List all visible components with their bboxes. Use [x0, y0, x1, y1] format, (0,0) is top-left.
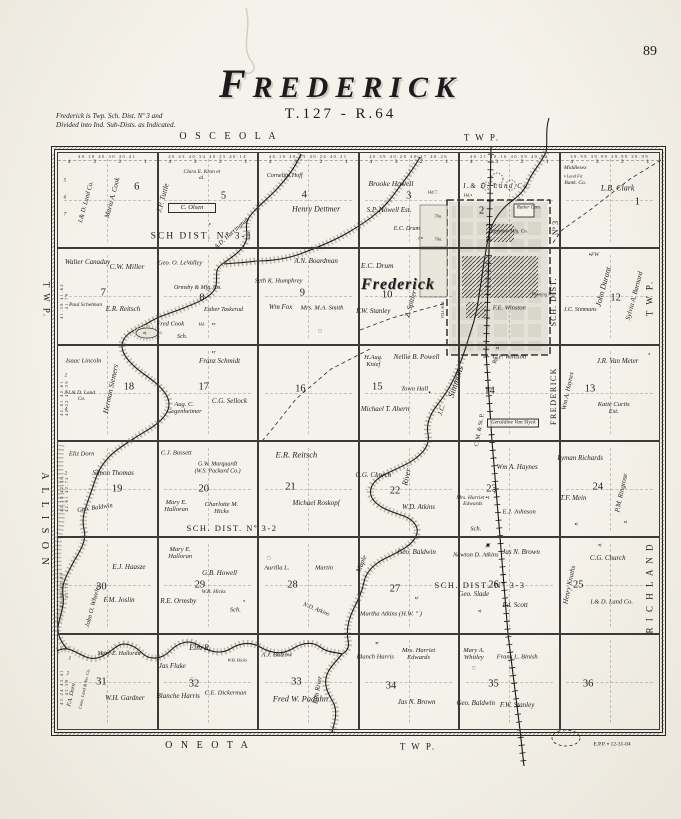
school-label: Sch.	[177, 334, 187, 340]
owner-label: C.G. Sellock	[207, 398, 251, 406]
owner-label: F.W. Stanley	[497, 703, 537, 711]
owner-label: E.C. Drum	[394, 226, 420, 232]
township-west-twp: T W P.	[42, 282, 51, 318]
homestead-marker: Hd.□	[428, 190, 437, 195]
owner-label: Geo. O. LeValley	[154, 259, 206, 266]
quarter-number: 4	[369, 159, 372, 165]
owner-label: Jas Fluke	[157, 663, 187, 671]
owner-label: Geo. Baldwin	[65, 500, 125, 515]
quarter-number: 4	[168, 159, 171, 165]
section-2: 40.21 40.16 40.09 40.034321I.& D. Land C…	[459, 152, 560, 248]
quarter-number: 1	[144, 159, 147, 165]
owner-label: Herman Siemers	[102, 364, 120, 415]
lot-number: 7	[64, 213, 67, 218]
owner-label: Jas N. Brown	[396, 699, 438, 707]
quarter-number: 2	[320, 159, 323, 165]
owner-label: E.R. Reitsch	[276, 451, 318, 460]
signature: E.P.P. ▪ 12-31-04	[593, 742, 630, 748]
owner-label: Esther Taskerud	[202, 306, 246, 312]
page-number: 89	[643, 44, 657, 60]
township-east-twp: T W P.	[646, 280, 655, 316]
building-marker: ▪r	[375, 641, 379, 646]
frederick-town-label: Frederick	[361, 277, 435, 293]
section-number: 16	[295, 384, 306, 395]
owner-label: P.M. Ringrose	[614, 473, 630, 513]
quarter-number: 4	[470, 159, 473, 165]
section-number: 9	[300, 287, 305, 298]
owner-label: Conn. Land & Inv. Co.	[78, 669, 91, 710]
owner-label: J.R. Van Meter	[590, 358, 645, 366]
quarter-number: 4	[269, 159, 272, 165]
owner-label: Aurilla L.	[264, 565, 289, 572]
building-marker: ▪	[428, 390, 430, 396]
quarter-numbers: 4321	[470, 159, 549, 165]
district-label-frederick: FREDERICK	[550, 367, 558, 425]
building-marker: ▪t	[478, 609, 481, 614]
quarter-number: 3	[495, 159, 498, 165]
owner-label: Fred Cook	[154, 320, 186, 327]
owner-label: Ed. Scott	[498, 602, 532, 610]
quarter-number: 2	[119, 159, 122, 165]
section-3: 40.39 40.28 40.27 40.264321Brooke Howell…	[359, 152, 460, 248]
owner-label: E.C. Drum	[357, 262, 397, 270]
owner-label: W.H. Gardner	[103, 695, 147, 703]
acreage-label: 70a.	[434, 237, 442, 242]
section-30: 42.86 42.99 43.12E.J. HaaszeF.M. JoslinJ…	[57, 537, 158, 633]
owner-label: C.J. Bassett	[156, 450, 196, 457]
acreage-label: 70a.	[434, 215, 442, 220]
village-limit-label: VILLAGE	[441, 301, 445, 318]
district-note-line1: Frederick is Twp. Sch. Dist. Nº 3 and	[56, 112, 175, 121]
owner-label: Henry Dettmer	[286, 205, 346, 214]
quarter-number: 2	[621, 159, 624, 165]
border-hatch-west	[51, 152, 54, 730]
owner-label: Blanche Harris	[155, 693, 201, 701]
owner-label: C.G. Church	[353, 472, 393, 480]
section-number: 8	[199, 293, 204, 304]
owner-label: G.W. Marquardt (W.S. Packard Co.)	[192, 462, 244, 475]
section-number: 13	[585, 384, 596, 395]
building-marker: ▪r	[212, 350, 216, 355]
section-number: 24	[593, 482, 604, 493]
section-14: ▪tG.P. WinstonGeraldine Van Slyck14	[459, 345, 560, 441]
district-label-no3: Nº 3	[552, 221, 560, 235]
quarter-number: 1	[445, 159, 448, 165]
section-number: 22	[390, 486, 401, 497]
section-16: 16	[258, 345, 359, 441]
section-number: 15	[372, 382, 383, 393]
township-west-label: A L L I S O N	[39, 472, 49, 567]
owner-label: Charlotte M. Hicks	[198, 501, 246, 515]
owner-label: C. Olsen	[168, 203, 216, 213]
quarter-number: 2	[219, 159, 222, 165]
section-number: 35	[488, 678, 499, 689]
owner-label: Cornelius Hoff	[262, 172, 307, 178]
owner-label: Middlesex	[564, 166, 587, 172]
owner-label: F.E. Winston	[484, 304, 534, 311]
building-marker: □	[472, 666, 475, 671]
owner-label: Simon Thomas	[91, 470, 135, 478]
quarter-numbers: 4321	[68, 159, 147, 165]
section-34: ▪rBlanch HarrisMrs. Harriet EdwardsJas N…	[359, 634, 460, 730]
section-number: 31	[96, 676, 107, 687]
homestead-marker: Hd.	[199, 322, 206, 327]
owner-label: L.B. Clark	[597, 185, 639, 194]
owner-label: Wm Fox	[269, 304, 293, 312]
section-19: 42.19 42.50 42.61 42.72Eliz Dorn2Simon T…	[57, 441, 158, 537]
section-24: Lyman RichardsT.F. MeinP.M. Ringrose▪t▪t…	[560, 441, 661, 537]
owner-label: Aug. C. Gegenheimer	[158, 401, 210, 415]
owner-label: R.E. Ormsby	[158, 599, 198, 607]
owner-label: Geraldine Van Slyck	[487, 419, 539, 428]
district-note-line2: Divided into Ind. Sub-Dists. as Indicate…	[56, 121, 175, 130]
section-6: 40.18 40.30 40.414321567I.& D. Land Co.M…	[57, 152, 158, 248]
quarter-number: 1	[244, 159, 247, 165]
acreage-figures-west: 41.38 41.62 41.79	[59, 281, 69, 321]
plat-map-page: 89 FREDERICK T.127 - R.64 Frederick is T…	[0, 0, 681, 819]
owner-label: Nellie B. Powell	[394, 354, 440, 362]
section-number: 14	[484, 385, 495, 396]
owner-label: I.& D. Land Co.	[65, 391, 99, 403]
section-7: 41.38 41.62 41.79Walter CanadayC.W. Mill…	[57, 248, 158, 344]
owner-label: Jas N. Brown	[501, 550, 541, 558]
owner-label: ▪ Land Fir	[564, 174, 583, 179]
map-title: FREDERICK	[0, 60, 681, 107]
owner-label: Michael T. Ahern	[357, 406, 413, 414]
building-marker: ▪t	[496, 347, 499, 352]
section-33: A.J. ButzowFred W. Paduhn33	[258, 634, 359, 730]
building-marker: ▪r	[415, 596, 419, 601]
owner-label: W.B. Hicks	[225, 659, 249, 664]
owner-label: Martin	[315, 565, 333, 572]
section-number: 12	[610, 293, 621, 304]
owner-label: Mary E. Halloran	[97, 650, 141, 656]
owner-label: S.P. Howell Est.	[367, 208, 412, 216]
owner-label: F.M. Joslin	[99, 597, 139, 605]
owner-label: Mary E. Halloran	[154, 499, 198, 513]
section-number: 18	[124, 382, 135, 393]
owner-label: Brooke Howell	[369, 180, 414, 188]
section-number: 19	[112, 484, 123, 495]
town-hall-label: Town Hall	[399, 386, 431, 393]
quarter-number: 3	[194, 159, 197, 165]
lot-number: 2	[65, 471, 68, 476]
owner-label: E.J. Haasze	[109, 565, 149, 573]
building-marker: ▣	[485, 543, 490, 548]
owner-label: Walter Canaday	[62, 260, 114, 268]
township-north-label: O S C E O L A	[179, 132, 278, 142]
owner-label: Martha Atkins (H.W. ″ )	[356, 610, 426, 617]
owner-label: Maria A. Cook	[104, 177, 122, 219]
quarter-numbers: 4321	[369, 159, 448, 165]
owner-label: Bank. Co.	[564, 181, 586, 187]
owner-label: N.D. Atkins	[302, 602, 330, 618]
owner-label: Katie Curtis Est.	[593, 401, 635, 415]
township-south-twp: T W P.	[400, 743, 436, 752]
section-number: 25	[573, 580, 584, 591]
building-marker: □	[319, 330, 322, 335]
owner-label: C.G. Church	[588, 555, 628, 563]
business-label: Keystone Mfg. Co.	[487, 230, 531, 235]
building-marker: ▪	[243, 600, 245, 605]
lot-number: 2	[67, 672, 70, 677]
building-marker: t ▪	[418, 236, 422, 241]
building-marker: ▪r	[212, 322, 216, 327]
section-4: 40.10 40.21 40.26 40.214321Cornelius Hof…	[258, 152, 359, 248]
quarter-number: 4	[68, 159, 71, 165]
section-15: H.Aug. KniefNellie B. PowellTown Hall▪Mi…	[359, 345, 460, 441]
building-marker: ▪	[209, 222, 211, 227]
owner-label: Geo. Baldwin	[395, 550, 439, 558]
owner-label: Seth K. Humphrey	[254, 278, 304, 285]
section-number: 29	[195, 580, 206, 591]
owner-label: Mrs. Harriet Edwards	[393, 646, 445, 660]
owner-label: I.& D. Land Co.	[589, 599, 634, 606]
building-marker: ▪t	[143, 332, 146, 337]
owner-label: F.W. Stanley	[352, 308, 394, 316]
owner-label: T.F. Mein	[556, 495, 590, 503]
owner-label: Geo. Baldwin	[455, 701, 497, 709]
section-number: 6	[134, 181, 139, 192]
owner-label: H.Aug. Knief	[356, 354, 390, 368]
quarter-numbers: 4321	[168, 159, 247, 165]
section-number: 30	[96, 582, 107, 593]
quarter-number: 3	[596, 159, 599, 165]
lot-number: 5	[64, 179, 67, 184]
owner-label: Mary E. Halloran	[158, 546, 203, 560]
owner-label: W.D. Atkins	[399, 504, 439, 512]
section-number: 7	[101, 287, 106, 298]
section-36: 36	[560, 634, 661, 730]
quarter-number: 1	[646, 159, 649, 165]
lot-number: 4	[65, 407, 68, 412]
owner-label: Mary A. Whitley	[453, 646, 495, 660]
section-22: C.G. ChurchW.D. Atkins22	[359, 441, 460, 537]
section-31: 43.24 43.41 43.58Mary E. HalloranW.H. Ga…	[57, 634, 158, 730]
owner-label: Newton D. Atkins	[452, 552, 500, 559]
owner-label: I.& D. Land Co.	[77, 181, 95, 224]
owner-label: Wm A. Haynes	[561, 371, 576, 410]
section-number: 21	[285, 482, 296, 493]
school-label: Sch.	[470, 525, 481, 532]
section-number: 1	[635, 197, 640, 208]
quarter-number: 1	[546, 159, 549, 165]
owner-label: Blanch Harris	[356, 654, 394, 661]
section-29: Mary E. HalloranG.B. HowellR.E. OrmsbyW.…	[158, 537, 259, 633]
owner-label: Michael Roskopf	[291, 500, 341, 508]
owner-label: Lyman Richards	[556, 455, 604, 463]
section-number: 36	[583, 678, 594, 689]
section-9: A.N. BoardmanSeth K. HumphreyWm FoxMrs. …	[258, 248, 359, 344]
section-number: 33	[291, 676, 302, 687]
border-hatch-south	[55, 732, 660, 735]
township-north-twp: T W P.	[464, 134, 500, 143]
owner-label: G.B. Howell	[201, 570, 239, 578]
border-hatch-north	[55, 147, 660, 150]
owner-label: Clara E. Kron et al.	[182, 170, 222, 182]
section-village: F.E. WinstonPenning Mill	[459, 248, 560, 344]
section-28: □Aurilla L.MartinN.D. Atkins28	[258, 537, 359, 633]
building-marker: ▪	[648, 352, 650, 357]
building-marker: □	[267, 557, 270, 562]
building-marker: ▪FW	[589, 253, 599, 259]
lot-number: 1	[69, 656, 72, 661]
section-number: 23	[486, 484, 497, 495]
section-23: Wm A. HaynesMrs. Harriet ▪t EdwardsE.J. …	[459, 441, 560, 537]
section-number: 4	[302, 189, 307, 200]
owner-label: Wm A. Haynes	[495, 465, 539, 473]
section-number: 28	[287, 580, 298, 591]
section-35: Mary A. Whitley□Frank L. BinishGeo. Bald…	[459, 634, 560, 730]
district-label-3-2: SCH. DIST. Nº 3-2	[186, 524, 277, 533]
acreage-figures-west: 42.86 42.99 43.12	[59, 570, 69, 610]
quarter-number: 2	[521, 159, 524, 165]
lot-number: 2	[65, 373, 68, 378]
quarter-numbers: 4321	[269, 159, 348, 165]
quarter-number: 3	[294, 159, 297, 165]
owner-label: Franz Schmidt	[196, 358, 244, 366]
section-13: Wm A. HaynesJ.R. Van MeterKatie Curtis E…	[560, 345, 661, 441]
township-east-label: R I C H L A N D	[646, 543, 655, 634]
owner-label: Isaac Lincoln	[65, 357, 103, 364]
section-number: 3	[406, 191, 411, 202]
river-label-elm: Elm R.	[189, 644, 211, 652]
quarter-number: 1	[345, 159, 348, 165]
owner-label: C.E. Dickerman	[199, 690, 251, 697]
section-number: 20	[199, 484, 210, 495]
district-label-schdist: SCH. DIST.	[550, 278, 558, 327]
building-marker: ▪t	[624, 520, 627, 525]
owner-label: A.J. Butzow	[257, 652, 297, 659]
district-label-3-1: SCH DIST. Nº 3-1	[151, 232, 254, 242]
owner-label: E.J. Johnson	[497, 508, 541, 515]
section-number: 17	[199, 382, 210, 393]
owner-label: A.N. Boardman	[289, 258, 344, 266]
section-10: E.C. DrumZ. SpitlerF.W. Stanley10	[359, 248, 460, 344]
owner-label: Sylvia A. Barnard	[625, 271, 645, 321]
quarter-number: 3	[395, 159, 398, 165]
building-marker: ▪t	[598, 543, 601, 548]
school-label: Sch.	[230, 606, 241, 613]
owner-label: Mrs. M.A. Smith	[300, 304, 345, 311]
section-number: 32	[189, 678, 200, 689]
owner-label: C.W. Miller	[108, 263, 146, 271]
section-1: 39.99 39.99 39.99 39.994321Middlesex▪ La…	[560, 152, 661, 248]
owner-label: Eliz Dorn	[67, 451, 97, 458]
owner-label: Paul Schelman	[67, 303, 105, 309]
owner-label: Frank L. Binish	[496, 654, 538, 661]
district-label-3-3: SCH. DIST. Nº 3-3	[434, 581, 525, 590]
section-18: 42.81 42.61 42.22 42.39Isaac Lincoln234H…	[57, 345, 158, 441]
section-number: 5	[221, 191, 226, 202]
owner-label: E.R. Reitsch	[100, 306, 146, 314]
owner-label: Mrs. Harriet ▪t Edwards	[452, 496, 494, 508]
owner-label: Ormsby & Mfg. Co.	[174, 285, 222, 291]
border-hatch-east	[661, 152, 664, 730]
quarter-number: 3	[93, 159, 96, 165]
district-note: Frederick is Twp. Sch. Dist. Nº 3 and Di…	[56, 112, 175, 131]
homestead-marker: Hd.▪	[464, 194, 472, 199]
lot-number: 6	[64, 196, 67, 201]
section-number: 27	[390, 584, 401, 595]
quarter-number: 2	[420, 159, 423, 165]
section-number: 2	[479, 206, 484, 217]
owner-label: I.& D. Land Co.	[463, 183, 531, 191]
owner-label: J.C. Simmans	[558, 306, 602, 312]
township-south-label: O N E O T A	[165, 741, 251, 751]
owner-label: Geo. Slade	[456, 591, 492, 599]
cemetery-label: Rutter Cem.	[517, 205, 541, 210]
owner-label: Z. Spitler	[403, 289, 418, 318]
building-marker: ▪t	[575, 522, 578, 527]
section-8: Geo. O. LeValleyOrmsby & Mfg. Co.Esther …	[158, 248, 259, 344]
section-17: ▪rFranz SchmidtAug. C. GegenheimerC.G. S…	[158, 345, 259, 441]
section-number: 34	[386, 680, 397, 691]
